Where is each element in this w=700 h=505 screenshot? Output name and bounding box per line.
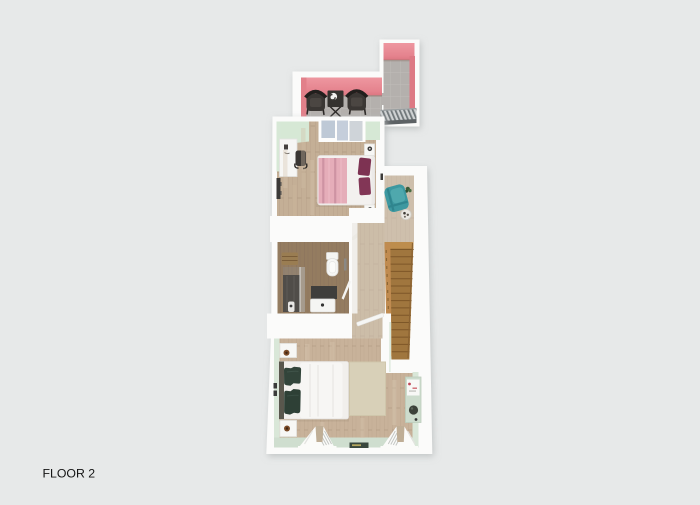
svg-text:FLOOR 2: FLOOR 2 bbox=[43, 467, 96, 481]
